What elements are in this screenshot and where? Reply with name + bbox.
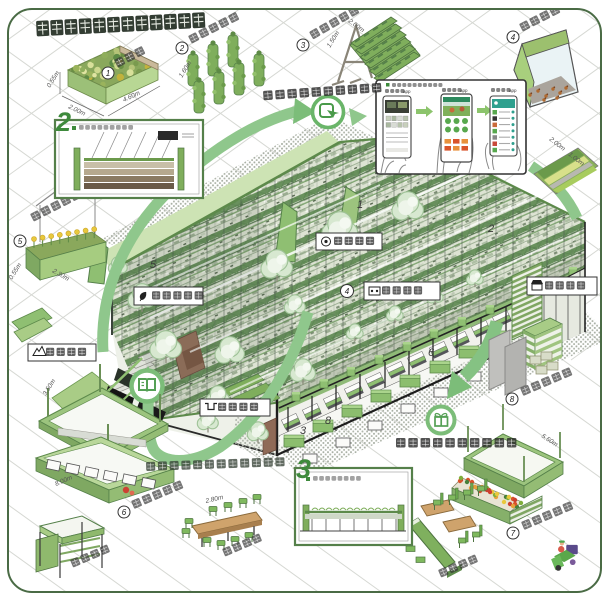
svg-text:4: 4 [511, 33, 516, 42]
svg-text:2: 2 [487, 223, 494, 235]
svg-text:5: 5 [18, 237, 23, 246]
svg-text:2: 2 [55, 107, 71, 137]
svg-text:5: 5 [150, 259, 157, 271]
svg-text:1: 1 [357, 199, 363, 211]
svg-text:4: 4 [345, 287, 350, 296]
svg-text:app: app [509, 88, 517, 93]
svg-text:8: 8 [325, 415, 332, 427]
svg-text:app: app [403, 89, 411, 94]
svg-text:6: 6 [122, 508, 127, 517]
svg-text:7: 7 [511, 529, 516, 538]
svg-text:app: app [460, 88, 468, 93]
svg-text:8: 8 [510, 395, 515, 404]
svg-text:3: 3 [301, 41, 306, 50]
svg-text:6: 6 [428, 347, 435, 359]
svg-text:1: 1 [106, 69, 110, 78]
svg-text:2: 2 [179, 44, 185, 53]
svg-text:3: 3 [300, 425, 307, 437]
